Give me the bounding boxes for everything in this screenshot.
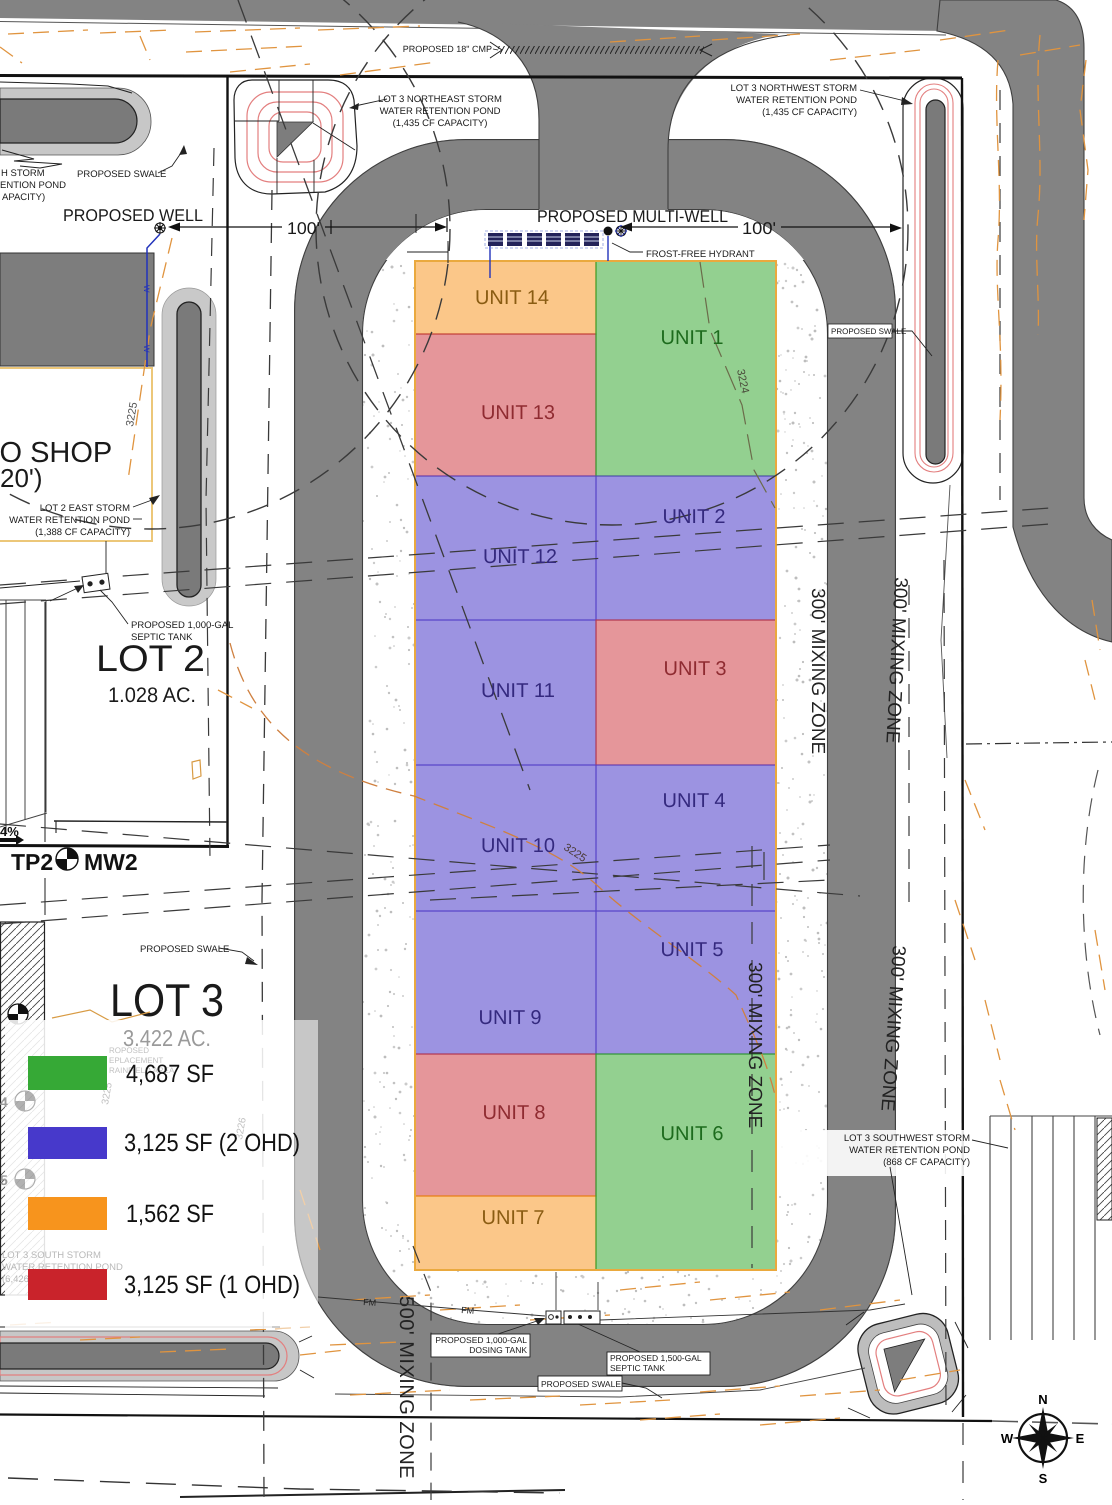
svg-text:W: W xyxy=(142,285,151,293)
svg-text:PROPOSED 1,000-GAL: PROPOSED 1,000-GAL xyxy=(131,620,233,631)
svg-text:PROPOSED MULTI-WELL: PROPOSED MULTI-WELL xyxy=(537,207,728,226)
svg-text:DOSING TANK: DOSING TANK xyxy=(469,1345,527,1355)
svg-text:WATER RETENTION POND: WATER RETENTION POND xyxy=(9,515,130,526)
svg-text:1,562 SF: 1,562 SF xyxy=(126,1200,214,1228)
svg-text:UNIT 1: UNIT 1 xyxy=(661,327,724,349)
svg-text:(868 CF CAPACITY): (868 CF CAPACITY) xyxy=(883,1157,970,1168)
svg-text:LOT 3 NORTHWEST STORM: LOT 3 NORTHWEST STORM xyxy=(730,83,857,94)
svg-text:S: S xyxy=(1039,1471,1048,1486)
svg-text:LOT 3 SOUTHWEST STORM: LOT 3 SOUTHWEST STORM xyxy=(844,1133,970,1144)
svg-text:100': 100' xyxy=(742,219,776,238)
svg-text:PROPOSED 18" CMP: PROPOSED 18" CMP xyxy=(403,44,492,54)
svg-text:PROPOSED SWALE: PROPOSED SWALE xyxy=(140,944,229,955)
svg-text:LOT 3 SOUTH STORM: LOT 3 SOUTH STORM xyxy=(2,1250,101,1261)
svg-text:4,687 SF: 4,687 SF xyxy=(126,1060,214,1088)
svg-text:UNIT 2: UNIT 2 xyxy=(663,506,726,528)
svg-text:UNIT 11: UNIT 11 xyxy=(481,680,555,702)
svg-text:FM: FM xyxy=(363,1297,377,1308)
svg-text:PROPOSED SWALE: PROPOSED SWALE xyxy=(77,169,166,180)
svg-text:H STORM: H STORM xyxy=(1,168,45,179)
svg-text:300' MIXING ZONE: 300' MIXING ZONE xyxy=(807,588,828,754)
svg-text:1.028 AC.: 1.028 AC. xyxy=(108,684,196,707)
svg-text:UNIT 10: UNIT 10 xyxy=(481,835,555,857)
svg-text:PROPOSED 1,500-GAL: PROPOSED 1,500-GAL xyxy=(610,1353,702,1363)
svg-text:300' MIXING ZONE: 300' MIXING ZONE xyxy=(744,962,765,1128)
svg-text:(40'x120'): (40'x120') xyxy=(0,463,43,493)
svg-text:E: E xyxy=(1076,1431,1085,1446)
svg-text:FM: FM xyxy=(461,1305,475,1316)
svg-text:MW2: MW2 xyxy=(84,849,138,875)
svg-text:TP2: TP2 xyxy=(11,849,53,875)
svg-text:LOT 3 NORTHEAST STORM: LOT 3 NORTHEAST STORM xyxy=(378,94,502,105)
svg-text:LOT 2: LOT 2 xyxy=(96,638,205,679)
svg-text:N: N xyxy=(1038,1392,1047,1407)
svg-text:LOT 2 EAST STORM: LOT 2 EAST STORM xyxy=(40,503,130,514)
svg-text:W: W xyxy=(1001,1431,1014,1446)
svg-text:UNIT 12: UNIT 12 xyxy=(483,546,557,568)
svg-text:PROPOSED SWALE: PROPOSED SWALE xyxy=(831,327,906,336)
svg-text:WATER RETENTION POND: WATER RETENTION POND xyxy=(849,1145,970,1156)
svg-text:UNIT 8: UNIT 8 xyxy=(483,1102,546,1124)
svg-text:500' MIXING ZONE: 500' MIXING ZONE xyxy=(395,1296,417,1479)
svg-text:ROPOSED: ROPOSED xyxy=(109,1046,149,1055)
svg-text:WATER RETENTION POND: WATER RETENTION POND xyxy=(736,95,857,106)
svg-text:APACITY): APACITY) xyxy=(2,192,45,203)
svg-text:WATER RETENTION POND: WATER RETENTION POND xyxy=(380,106,501,117)
svg-text:PROPOSED WELL: PROPOSED WELL xyxy=(63,206,203,225)
svg-text:UNIT 3: UNIT 3 xyxy=(664,658,727,680)
svg-text:UNIT 7: UNIT 7 xyxy=(482,1207,545,1229)
svg-text:UNIT 6: UNIT 6 xyxy=(661,1123,724,1145)
svg-text:W: W xyxy=(142,345,151,353)
svg-text:(1,388 CF CAPACITY): (1,388 CF CAPACITY) xyxy=(35,527,130,538)
svg-text:3,125 SF (1 OHD): 3,125 SF (1 OHD) xyxy=(124,1271,300,1299)
svg-text:4: 4 xyxy=(0,1094,8,1110)
svg-text:UNIT 9: UNIT 9 xyxy=(479,1007,542,1029)
svg-text:PROPOSED SWALE: PROPOSED SWALE xyxy=(541,1379,621,1389)
svg-text:ENTION POND: ENTION POND xyxy=(0,180,66,191)
svg-text:UNIT 14: UNIT 14 xyxy=(475,287,549,309)
svg-text:UNIT 13: UNIT 13 xyxy=(481,402,555,424)
svg-text:FROST-FREE HYDRANT: FROST-FREE HYDRANT xyxy=(646,249,755,260)
svg-text:UNIT 5: UNIT 5 xyxy=(661,939,724,961)
svg-text:(1,435 CF CAPACITY): (1,435 CF CAPACITY) xyxy=(393,118,488,129)
svg-text:UNIT 4: UNIT 4 xyxy=(663,790,726,812)
svg-text:SEPTIC TANK: SEPTIC TANK xyxy=(610,1363,665,1373)
svg-text:(1,435 CF CAPACITY): (1,435 CF CAPACITY) xyxy=(762,107,857,118)
svg-text:PROPOSED 1,000-GAL: PROPOSED 1,000-GAL xyxy=(435,1335,527,1345)
svg-text:3,125 SF (2 OHD): 3,125 SF (2 OHD) xyxy=(124,1129,300,1157)
svg-text:100': 100' xyxy=(287,219,320,238)
svg-text:5: 5 xyxy=(0,1172,8,1188)
